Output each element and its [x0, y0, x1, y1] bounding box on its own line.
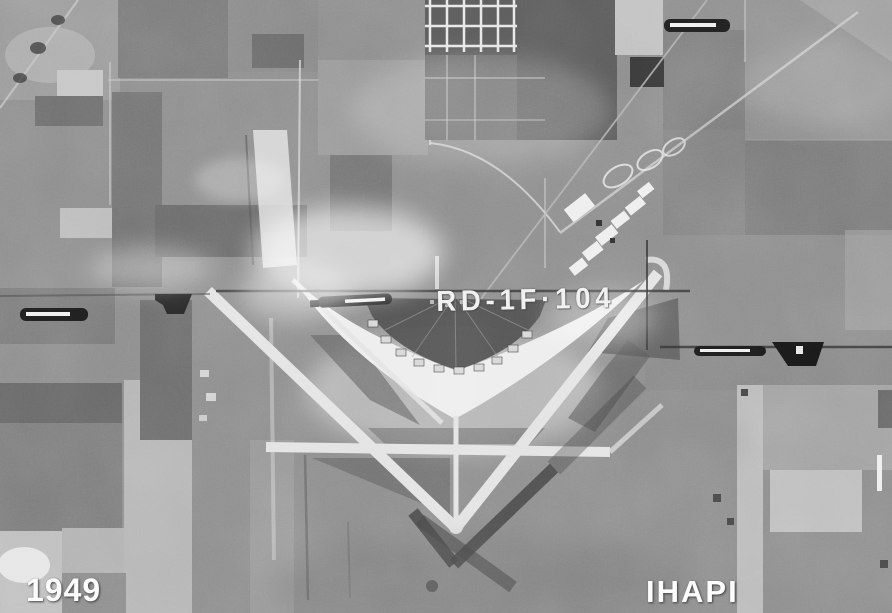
year-label: 1949	[26, 572, 101, 609]
aerial-photo-1949: RD-1F·104 1949 IHAPI	[0, 0, 892, 613]
archive-watermark: IHAPI	[646, 574, 739, 610]
photo-frame-code: RD-1F·104	[436, 282, 616, 319]
